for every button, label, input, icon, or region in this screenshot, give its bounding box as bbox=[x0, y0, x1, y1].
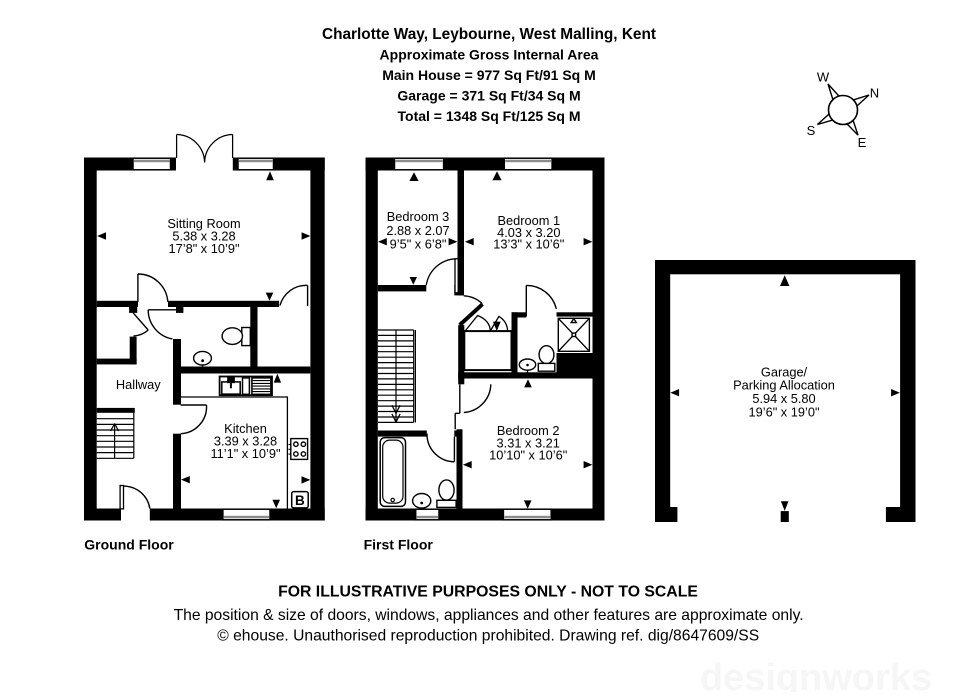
svg-text:B: B bbox=[295, 493, 305, 508]
svg-text:2.88 x 2.07: 2.88 x 2.07 bbox=[386, 223, 449, 238]
svg-text:Total = 1348 Sq Ft/125 Sq M: Total = 1348 Sq Ft/125 Sq M bbox=[398, 108, 581, 124]
svg-text:Hallway: Hallway bbox=[116, 377, 161, 392]
svg-text:13’3" x 10’6": 13’3" x 10’6" bbox=[493, 237, 564, 252]
svg-text:E: E bbox=[858, 135, 867, 150]
svg-text:Charlotte Way, Leybourne, West: Charlotte Way, Leybourne, West Malling, … bbox=[322, 26, 656, 43]
svg-text:9’5" x 6’8": 9’5" x 6’8" bbox=[390, 237, 447, 252]
svg-text:© ehouse. Unauthorised reprodu: © ehouse. Unauthorised reproduction proh… bbox=[217, 628, 759, 645]
svg-text:19’6" x 19’0": 19’6" x 19’0" bbox=[749, 404, 820, 419]
svg-text:11’1" x 10’9": 11’1" x 10’9" bbox=[210, 446, 280, 461]
svg-text:FOR ILLUSTRATIVE PURPOSES ONLY: FOR ILLUSTRATIVE PURPOSES ONLY - NOT TO … bbox=[278, 584, 698, 601]
svg-text:Ground Floor: Ground Floor bbox=[84, 537, 174, 553]
svg-text:Garage = 371 Sq Ft/34 Sq M: Garage = 371 Sq Ft/34 Sq M bbox=[397, 88, 580, 104]
svg-text:designworks: designworks bbox=[700, 657, 932, 692]
svg-text:N: N bbox=[870, 86, 879, 101]
svg-text:Approximate Gross Internal Are: Approximate Gross Internal Area bbox=[380, 47, 599, 63]
svg-text:S: S bbox=[807, 123, 816, 138]
svg-text:10’10" x 10’6": 10’10" x 10’6" bbox=[489, 448, 567, 463]
svg-text:First Floor: First Floor bbox=[364, 537, 434, 553]
svg-text:Main House = 977 Sq Ft/91 Sq M: Main House = 977 Sq Ft/91 Sq M bbox=[382, 67, 596, 83]
svg-text:W: W bbox=[817, 70, 830, 85]
svg-text:Bedroom 3: Bedroom 3 bbox=[387, 209, 450, 224]
svg-text:17’8" x 10’9": 17’8" x 10’9" bbox=[169, 241, 240, 256]
svg-text:The position & size of doors,: The position & size of doors, windows, a… bbox=[174, 607, 804, 624]
